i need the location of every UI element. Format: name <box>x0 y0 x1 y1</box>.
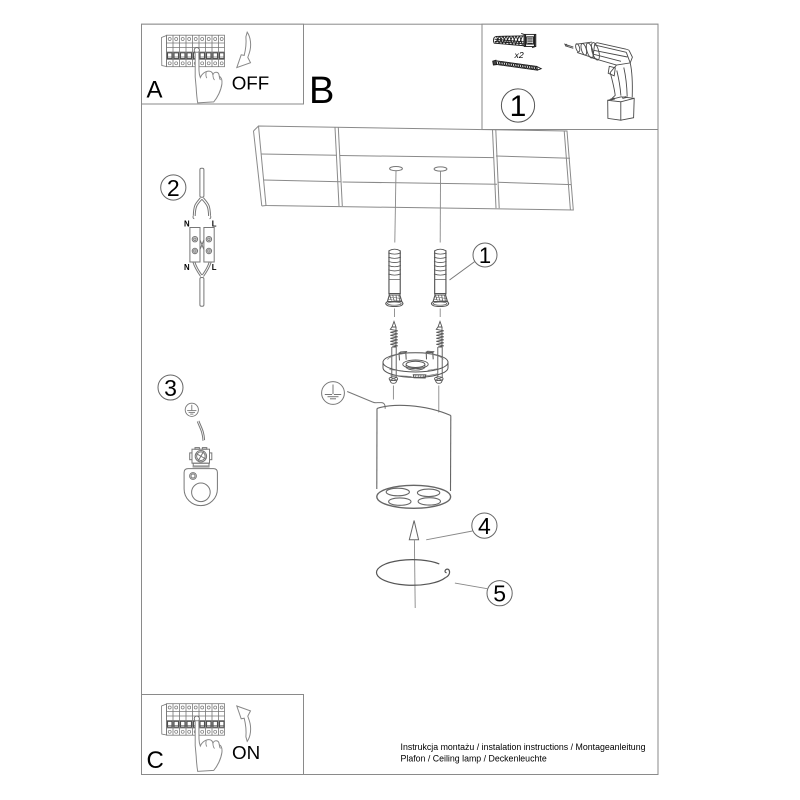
svg-text:OFF: OFF <box>232 73 270 94</box>
svg-text:1: 1 <box>479 243 491 268</box>
svg-text:Instrukcja montażu / instalati: Instrukcja montażu / instalation instruc… <box>401 742 646 752</box>
svg-text:5: 5 <box>493 581 506 607</box>
svg-text:B: B <box>309 70 334 112</box>
svg-text:A: A <box>147 77 163 104</box>
svg-text:1: 1 <box>510 90 527 123</box>
svg-text:Plafon / Ceiling lamp / Decken: Plafon / Ceiling lamp / Deckenleuchte <box>401 754 547 764</box>
svg-text:C: C <box>147 747 164 774</box>
svg-text:3: 3 <box>164 375 177 401</box>
svg-text:N: N <box>184 219 190 228</box>
svg-text:L: L <box>212 263 217 272</box>
svg-text:N: N <box>184 263 190 272</box>
svg-text:4: 4 <box>478 513 491 539</box>
svg-text:x2: x2 <box>514 50 524 60</box>
svg-text:ON: ON <box>232 742 260 763</box>
svg-text:2: 2 <box>167 175 180 201</box>
